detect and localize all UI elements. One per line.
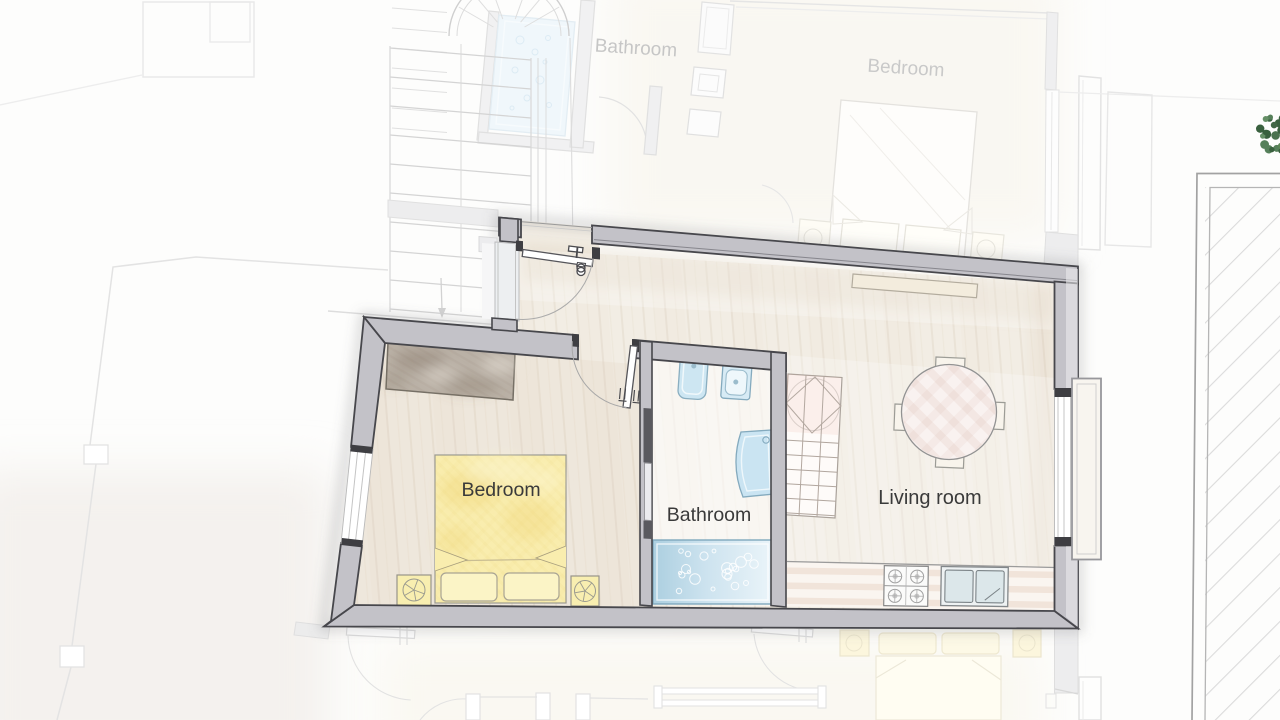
svg-text:Living room: Living room [878,487,981,509]
svg-text:Bathroom: Bathroom [667,504,752,526]
svg-text:Bedroom: Bedroom [461,479,540,501]
